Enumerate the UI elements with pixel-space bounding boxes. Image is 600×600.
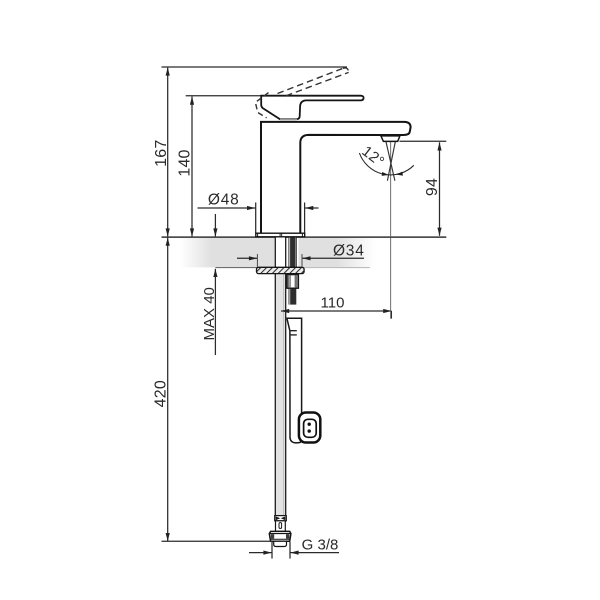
svg-text:110: 110 <box>321 295 345 312</box>
svg-text:Ø34: Ø34 <box>333 242 365 259</box>
svg-text:167: 167 <box>153 140 170 167</box>
svg-text:420: 420 <box>152 380 169 407</box>
svg-text:MAX 40: MAX 40 <box>201 287 218 340</box>
svg-text:G 3/8: G 3/8 <box>302 537 339 554</box>
svg-text:Ø48: Ø48 <box>208 192 240 209</box>
svg-text:140: 140 <box>177 149 194 176</box>
svg-text:94: 94 <box>424 178 441 196</box>
